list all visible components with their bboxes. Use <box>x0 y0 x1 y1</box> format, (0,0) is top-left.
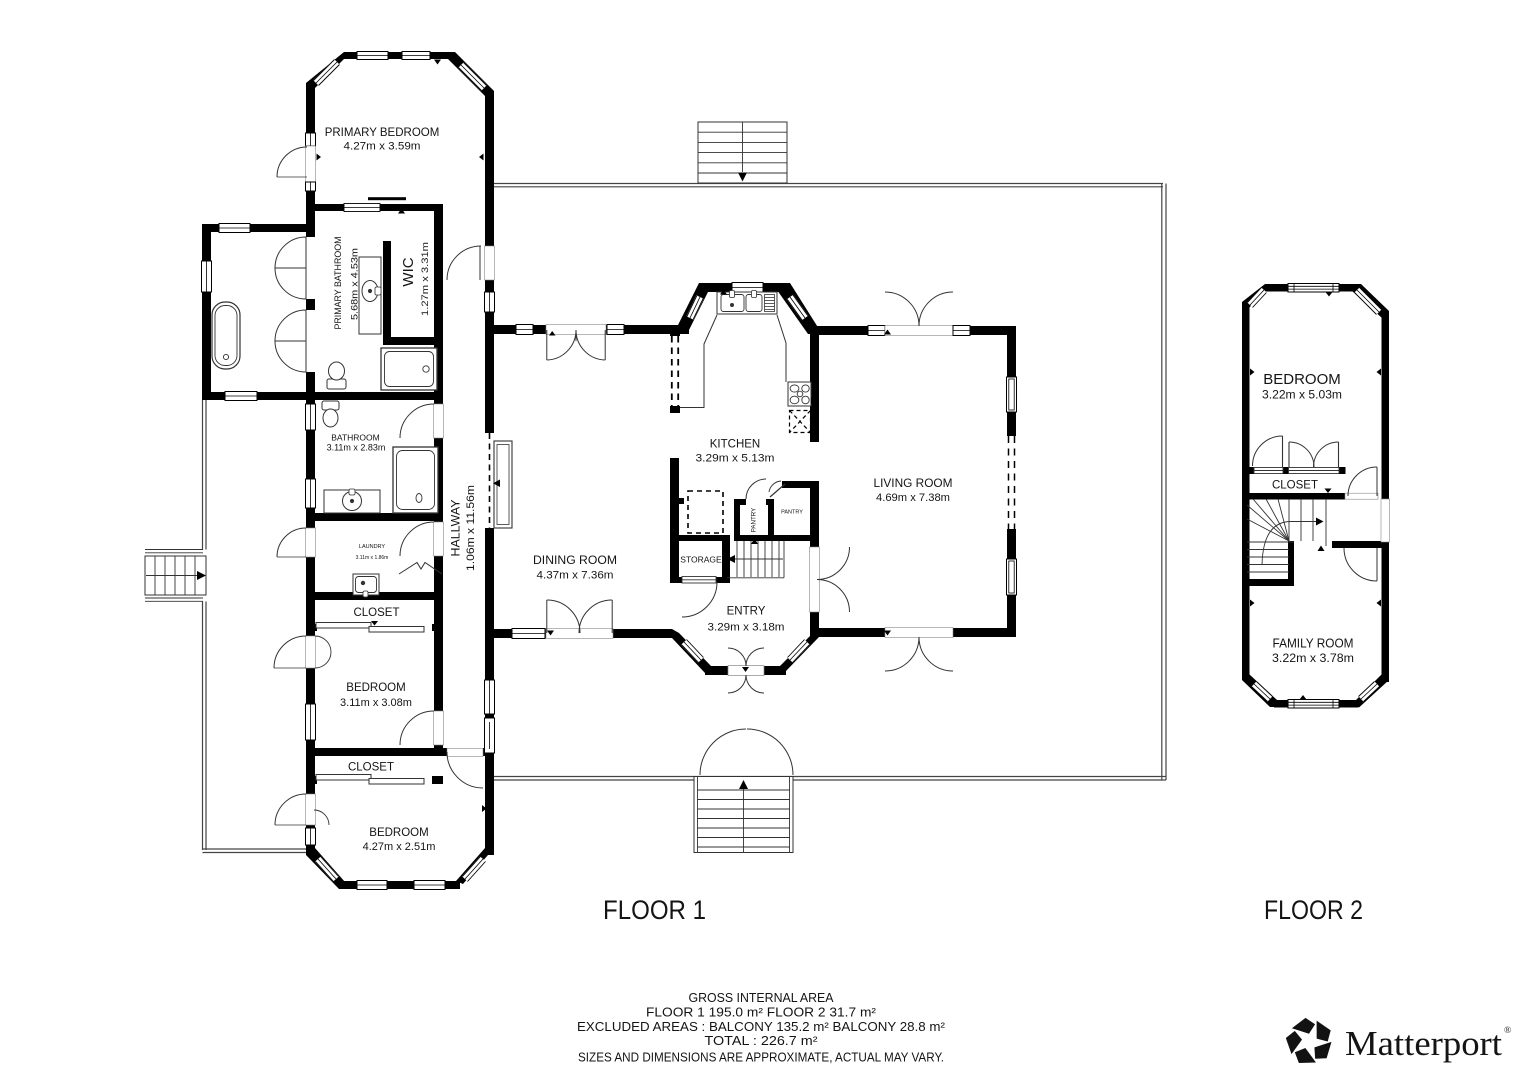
svg-text:4.69m x 7.38m: 4.69m x 7.38m <box>876 492 950 504</box>
svg-text:EXCLUDED AREAS : BALCONY 135.: EXCLUDED AREAS : BALCONY 135.2 m² BALCON… <box>577 1019 946 1034</box>
svg-text:KITCHEN: KITCHEN <box>710 439 760 451</box>
svg-text:BEDROOM: BEDROOM <box>369 827 428 839</box>
svg-text:ENTRY: ENTRY <box>727 606 766 618</box>
svg-text:FLOOR 1: FLOOR 1 <box>603 895 706 925</box>
svg-text:4.37m x 7.36m: 4.37m x 7.36m <box>537 570 614 582</box>
svg-text:PANTRY: PANTRY <box>781 510 803 516</box>
svg-text:LAUNDRY: LAUNDRY <box>359 544 386 550</box>
svg-text:BEDROOM: BEDROOM <box>346 682 405 694</box>
svg-text:3.29m x 5.13m: 3.29m x 5.13m <box>696 453 775 465</box>
svg-text:®: ® <box>1504 1025 1511 1036</box>
svg-text:4.27m x 3.59m: 4.27m x 3.59m <box>344 141 421 153</box>
svg-text:TOTAL : 226.7 m²: TOTAL : 226.7 m² <box>705 1033 819 1048</box>
svg-text:DINING ROOM: DINING ROOM <box>533 555 617 567</box>
svg-text:1.27m x 3.31m: 1.27m x 3.31m <box>420 242 431 316</box>
svg-text:WIC: WIC <box>400 257 417 286</box>
svg-text:1.06m x 11.56m: 1.06m x 11.56m <box>465 485 477 571</box>
svg-text:CLOSET: CLOSET <box>1272 480 1318 492</box>
svg-text:PRIMARY BATHROOM: PRIMARY BATHROOM <box>333 237 343 330</box>
svg-text:3.11m x 3.08m: 3.11m x 3.08m <box>340 697 412 709</box>
svg-text:SIZES AND DIMENSIONS ARE APPRO: SIZES AND DIMENSIONS ARE APPROXIMATE, AC… <box>578 1050 944 1065</box>
svg-text:BEDROOM: BEDROOM <box>1263 371 1341 388</box>
svg-text:3.11m x 1.86m: 3.11m x 1.86m <box>356 555 389 561</box>
svg-text:3.11m x 2.83m: 3.11m x 2.83m <box>327 443 386 453</box>
svg-text:PRIMARY BEDROOM: PRIMARY BEDROOM <box>325 127 440 139</box>
svg-text:Matterport: Matterport <box>1345 1024 1502 1063</box>
svg-text:FLOOR 2: FLOOR 2 <box>1264 895 1363 925</box>
svg-text:PANTRY: PANTRY <box>751 508 758 533</box>
svg-text:CLOSET: CLOSET <box>353 607 399 619</box>
svg-text:FAMILY ROOM: FAMILY ROOM <box>1273 636 1354 651</box>
svg-text:GROSS INTERNAL AREA: GROSS INTERNAL AREA <box>689 990 834 1005</box>
svg-text:BATHROOM: BATHROOM <box>331 433 379 443</box>
svg-text:5.68m x 4.53m: 5.68m x 4.53m <box>350 248 360 320</box>
svg-text:3.22m x 5.03m: 3.22m x 5.03m <box>1262 388 1342 402</box>
svg-text:3.29m x 3.18m: 3.29m x 3.18m <box>708 622 785 634</box>
svg-text:CLOSET: CLOSET <box>348 762 394 774</box>
svg-text:LIVING ROOM: LIVING ROOM <box>874 478 953 490</box>
svg-text:STORAGE: STORAGE <box>680 555 722 565</box>
svg-text:FLOOR 1 195.0 m² FLOOR 2 31.: FLOOR 1 195.0 m² FLOOR 2 31.7 m² <box>646 1005 877 1020</box>
svg-text:4.27m x 2.51m: 4.27m x 2.51m <box>363 841 436 853</box>
svg-text:HALLWAY: HALLWAY <box>449 500 463 557</box>
svg-text:3.22m x 3.78m: 3.22m x 3.78m <box>1272 651 1354 665</box>
